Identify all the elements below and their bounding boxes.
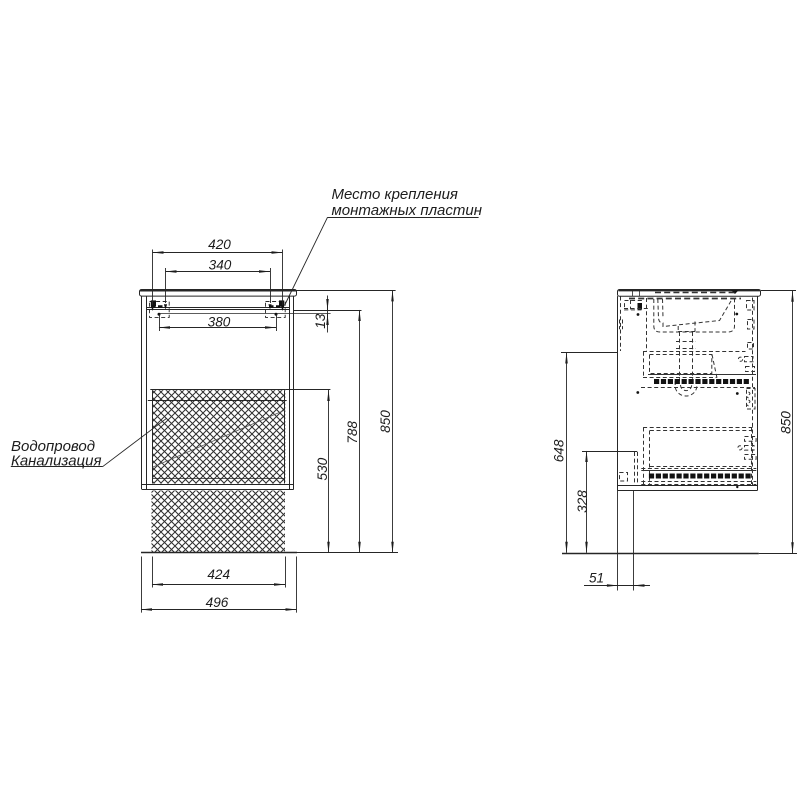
svg-text:монтажных пластин: монтажных пластин (332, 202, 482, 219)
svg-text:420: 420 (208, 237, 231, 252)
svg-text:51: 51 (589, 570, 604, 585)
svg-text:Канализация: Канализация (11, 453, 102, 470)
svg-text:328: 328 (575, 490, 590, 513)
svg-text:648: 648 (551, 439, 566, 462)
svg-text:788: 788 (345, 421, 360, 444)
svg-text:Место крепления: Место крепления (332, 186, 458, 203)
svg-text:496: 496 (206, 595, 229, 610)
svg-text:850: 850 (378, 410, 393, 433)
svg-text:380: 380 (208, 314, 231, 329)
svg-text:530: 530 (315, 457, 330, 480)
svg-text:340: 340 (209, 258, 232, 273)
svg-text:424: 424 (207, 567, 230, 582)
svg-text:850: 850 (779, 411, 794, 434)
svg-text:13: 13 (313, 313, 328, 329)
